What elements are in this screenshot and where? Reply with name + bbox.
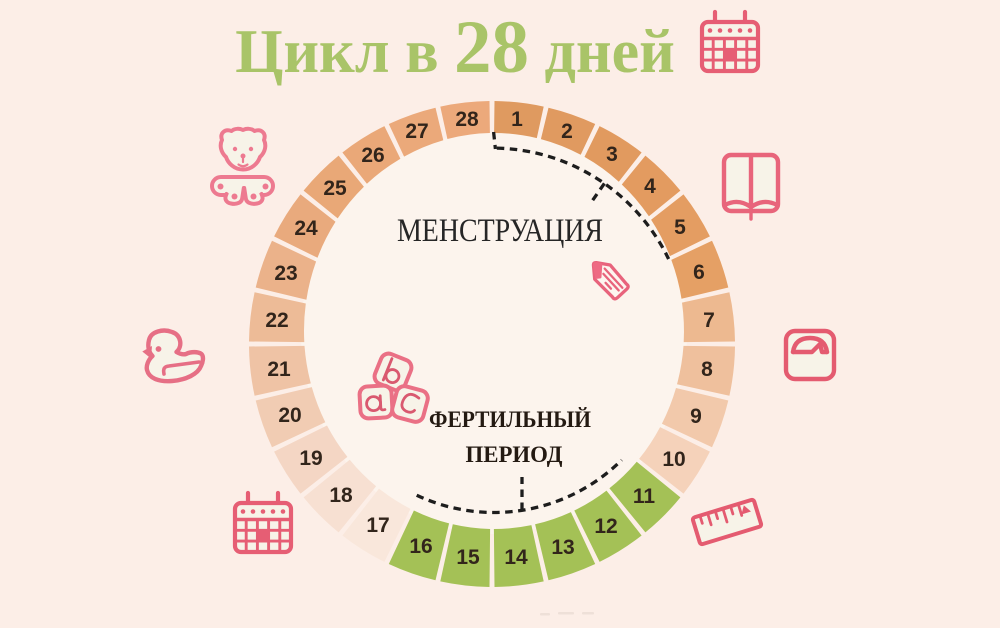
svg-text:МЕНСТРУАЦИЯ: МЕНСТРУАЦИЯ: [397, 213, 603, 249]
svg-text:22: 22: [265, 309, 288, 332]
svg-text:18: 18: [329, 484, 353, 507]
svg-text:15: 15: [456, 546, 480, 569]
svg-text:5: 5: [674, 216, 686, 239]
svg-text:12: 12: [594, 515, 617, 538]
svg-text:4: 4: [644, 175, 656, 198]
svg-text:23: 23: [274, 262, 297, 285]
svg-text:ФЕРТИЛЬНЫЙ: ФЕРТИЛЬНЫЙ: [429, 407, 591, 432]
svg-text:ПЕРИОД: ПЕРИОД: [466, 442, 563, 467]
svg-text:Цикл в 28 дней: Цикл в 28 дней: [235, 6, 675, 89]
svg-text:7: 7: [703, 309, 715, 332]
svg-text:16: 16: [409, 535, 432, 558]
svg-text:17: 17: [366, 514, 389, 537]
svg-text:14: 14: [504, 546, 528, 569]
svg-text:13: 13: [551, 536, 574, 559]
svg-text:21: 21: [267, 358, 291, 381]
svg-text:9: 9: [690, 405, 702, 428]
svg-text:3: 3: [606, 143, 618, 166]
svg-text:1: 1: [511, 108, 523, 131]
svg-text:27: 27: [405, 120, 428, 143]
svg-text:24: 24: [294, 217, 318, 240]
svg-text:8: 8: [701, 358, 713, 381]
svg-text:10: 10: [662, 448, 685, 471]
svg-text:26: 26: [361, 144, 384, 167]
svg-text:20: 20: [278, 404, 301, 427]
svg-text:11: 11: [633, 485, 656, 508]
svg-text:2: 2: [561, 120, 573, 143]
svg-text:28: 28: [455, 108, 479, 131]
svg-text:19: 19: [299, 447, 322, 470]
svg-text:6: 6: [693, 261, 705, 284]
svg-text:25: 25: [323, 177, 347, 200]
